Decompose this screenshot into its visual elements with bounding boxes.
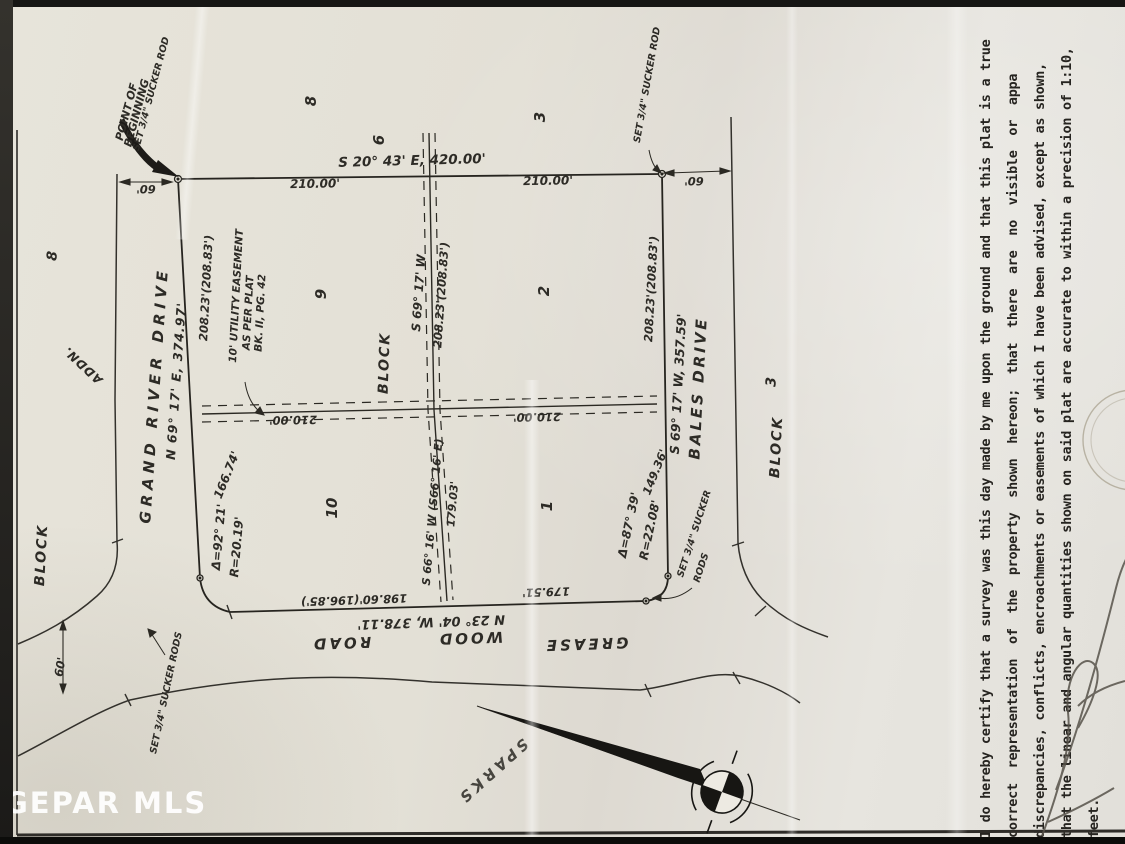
block-label-right: BLOCK [768, 416, 786, 479]
street-width-dim-top-right: 60' [684, 175, 704, 187]
north-boundary-seg-right: 210.00' [523, 174, 573, 187]
mid-line-seg-left: 210.00' [269, 414, 317, 427]
rods-label-se-line2: RODS [693, 552, 712, 584]
north-boundary-bearing: S 20° 43' E, 420.00' [338, 152, 486, 170]
adjacent-lot-3-top: 3 [533, 112, 549, 122]
curve-se-radius: R=22.08' [638, 499, 663, 561]
curve-sw-arc: 166.74' [212, 449, 242, 500]
lot-1-number: 1 [540, 501, 556, 511]
lower-center-distance: 179.03' [445, 481, 460, 528]
street-name-greasewood-word1: GREASE [543, 634, 628, 653]
survey-plat-photo: POINT OF BEGINNING SET 3/4" SUCKER ROD 6… [0, 0, 1125, 844]
adjacent-lot-6-top: 6 [372, 135, 388, 145]
gepar-mls-watermark: GEPAR MLS [4, 786, 207, 820]
south-boundary-seg-right: 179.51' [522, 585, 570, 599]
curve-sw-radius: R=20.19' [228, 516, 246, 578]
photo-edge-left [0, 0, 13, 844]
lot-2-number: 2 [537, 286, 553, 296]
sparks-label: SPARKS [453, 735, 530, 807]
block-label-center: BLOCK [377, 332, 394, 395]
curve-se-seg: 149.36' [640, 448, 669, 497]
street-name-bales: BALES DRIVE [687, 316, 710, 460]
rods-label-left: SET 3/4" SUCKER RODS [149, 631, 185, 755]
adjacent-lot-8-left: 8 [45, 251, 60, 262]
center-line-distance: 208.23'(208.83') [431, 242, 450, 349]
photo-edge-top [0, 0, 1125, 7]
adjacent-lot-8-top: 8 [304, 96, 320, 106]
easement-note-line3: BK. II, PG. 42 [253, 274, 268, 352]
mid-line-seg-right: 210.00' [513, 411, 561, 424]
street-name-greasewood-word3: ROAD [311, 633, 372, 651]
rod-label-top-right: SET 3/4" SUCKER ROD [633, 26, 663, 143]
south-boundary-seg-left: 198.60'(196.85') [301, 592, 408, 608]
lot-9-number: 9 [314, 289, 330, 299]
block-label-left: BLOCK [33, 524, 51, 587]
curve-sw-delta: Δ=92° 21' [210, 503, 228, 570]
east-line-distance: 208.23'(208.83') [642, 236, 660, 343]
street-bearing-bales: S 69° 17' W, 357.59' [668, 313, 688, 454]
street-width-dim-left: 60' [52, 656, 67, 677]
addn-label: ADDN. [61, 344, 105, 387]
west-line-distance: 208.23'(208.83') [197, 235, 215, 342]
street-name-greasewood-word2: WOOD [436, 628, 503, 646]
photo-edge-bottom [0, 837, 1125, 844]
lot-10-number: 10 [325, 498, 341, 519]
lower-center-bearing: S 66° 16' W (S66° 16' E) [421, 438, 445, 586]
block-number-right: 3 [764, 377, 779, 388]
north-boundary-seg-left: 210.00' [290, 177, 340, 190]
street-width-dim-top-left: 60' [136, 183, 156, 195]
center-line-bearing: S 69° 17' W [410, 254, 428, 332]
label-layer: POINT OF BEGINNING SET 3/4" SUCKER ROD 6… [0, 0, 1125, 844]
